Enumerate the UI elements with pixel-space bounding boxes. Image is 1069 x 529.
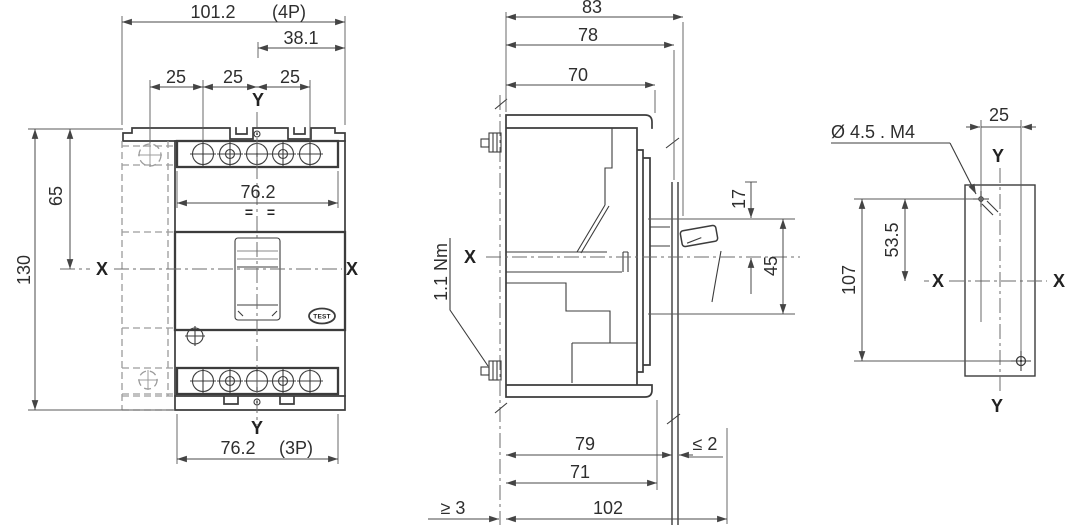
dim-handle-offset-label: 38.1 <box>283 28 318 48</box>
fixing-bolt-icon <box>481 361 501 380</box>
dim-pitch-label: 25 <box>223 67 243 87</box>
dim-min-clearance-label: ≥ 3 <box>441 498 466 518</box>
mounting-hole-bottom <box>1011 351 1031 371</box>
handle-knob[interactable] <box>680 225 718 247</box>
handle-clearance-curve <box>712 251 721 302</box>
dim-depth-panel-label: 78 <box>578 25 598 45</box>
dim-overall-height-label: 130 <box>14 255 34 285</box>
dim-overall-width-label: 101.2 <box>190 2 235 22</box>
side-extension-lines <box>506 12 757 524</box>
equal-mark: = <box>245 204 253 220</box>
axis-y-label: Y <box>252 90 264 110</box>
side-view: X 1.1 Nm 83 78 70 17 45 79 ≤ 2 71 102 ≥ … <box>428 0 800 525</box>
dim-behind-panel-label: 79 <box>575 434 595 454</box>
terminal-screws <box>185 131 323 405</box>
side-body-outline <box>506 115 652 397</box>
dim-cutout-height-label: 45 <box>761 256 781 276</box>
axis-y-label: Y <box>992 146 1004 166</box>
side-internal-mechanism <box>506 128 670 383</box>
equal-mark: = <box>267 204 275 220</box>
dim-bottom-width-label: 76.2 <box>220 438 255 458</box>
dim-bezel-depth-label: 71 <box>570 462 590 482</box>
panel-lines <box>672 182 678 525</box>
handle-through-panel[interactable] <box>680 225 718 247</box>
test-button-label: TEST <box>313 314 330 321</box>
axis-y-label: Y <box>251 418 263 438</box>
axis-x-label: X <box>1053 271 1065 291</box>
front-view: TEST X X Y Y 101.2 (4P) 38.1 25 25 25 13… <box>14 2 358 464</box>
hole-leader-line <box>950 143 976 194</box>
dim-pitch-label: 25 <box>166 67 186 87</box>
hole-size-note: Ø 4.5 . M4 <box>831 122 915 142</box>
dim-hole-offset-label: 25 <box>989 105 1009 125</box>
dim-hole-center-label: 53.5 <box>882 222 902 257</box>
break-slash-marks <box>495 99 680 424</box>
dim-depth-overall-label: 83 <box>582 0 602 17</box>
technical-drawing-canvas: TEST X X Y Y 101.2 (4P) 38.1 25 25 25 13… <box>0 0 1069 529</box>
fourth-pole-dashed-outline <box>122 141 177 410</box>
bolt-shank <box>481 139 489 147</box>
bolt-head-facets <box>493 133 497 152</box>
dim-depth-bezel-label: 70 <box>568 65 588 85</box>
dim-max-panel-label: ≤ 2 <box>693 434 718 454</box>
fixing-bolt-icon <box>481 133 501 152</box>
dim-overall-width-note: (4P) <box>272 2 306 22</box>
dim-bottom-width-note: (3P) <box>279 438 313 458</box>
dim-pitch-label: 25 <box>280 67 300 87</box>
bolt-head <box>489 133 501 152</box>
dim-center-height-label: 65 <box>46 186 66 206</box>
dim-total-depth-label: 102 <box>593 498 623 518</box>
handle-mark <box>687 238 702 244</box>
drilling-plan-view: X X Y Y 25 Ø 4.5 . M4 107 53.5 <box>831 105 1065 416</box>
axis-x-label: X <box>96 259 108 279</box>
fourth-pole-screw-cross <box>138 143 162 390</box>
hole-center-dot <box>1020 360 1022 362</box>
hole-thread-ticks <box>982 201 998 215</box>
dim-handle-center-label: 17 <box>729 189 749 209</box>
axis-y-label: Y <box>991 396 1003 416</box>
bolt-head <box>489 361 501 380</box>
front-top-cap <box>123 128 345 141</box>
bolt-shank <box>481 367 489 375</box>
breaker-dimension-drawing: TEST X X Y Y 101.2 (4P) 38.1 25 25 25 13… <box>0 0 1069 529</box>
dim-hole-spacing-label: 107 <box>839 265 859 295</box>
axis-x-label: X <box>464 247 476 267</box>
torque-label: 1.1 Nm <box>431 243 451 301</box>
axis-x-label: X <box>932 271 944 291</box>
dim-terminal-width-label: 76.2 <box>240 182 275 202</box>
axis-x-label: X <box>346 259 358 279</box>
bolt-head-facets <box>493 361 497 380</box>
